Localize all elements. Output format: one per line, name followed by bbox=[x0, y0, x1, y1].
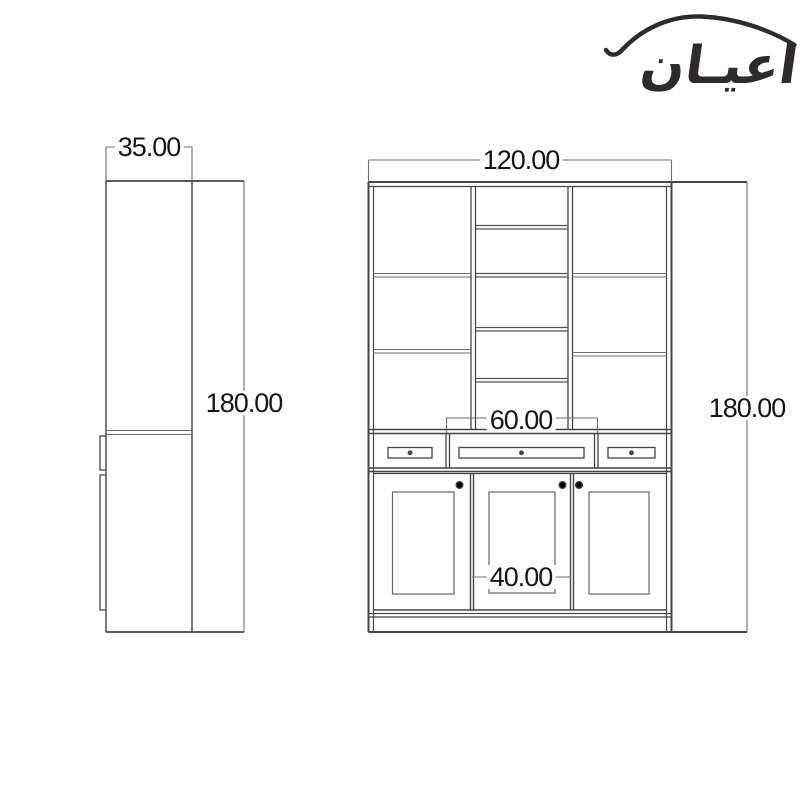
middle-door-knob-icon bbox=[559, 482, 566, 489]
front-view bbox=[369, 182, 748, 632]
middle-drawer-knob-icon bbox=[520, 451, 524, 455]
front-dimension-lines bbox=[369, 160, 748, 632]
left-drawer-knob-icon bbox=[408, 451, 412, 455]
door-knobs bbox=[456, 482, 582, 489]
dim-label-front-width: 120.00 bbox=[480, 148, 563, 172]
drawer-band-bottom bbox=[369, 468, 672, 472]
right-door-knob-icon bbox=[576, 482, 583, 489]
logo-text: اعيـان bbox=[636, 34, 800, 99]
right-door-panel bbox=[589, 492, 649, 594]
right-column-shelves bbox=[573, 274, 667, 357]
dim-label-center-drawer-width: 60.00 bbox=[487, 408, 556, 432]
left-column-shelves bbox=[374, 274, 472, 354]
dim-label-side-height: 180.00 bbox=[203, 391, 286, 415]
left-door-panel bbox=[393, 492, 455, 594]
dim-label-side-width: 35.00 bbox=[115, 135, 184, 159]
side-drawer-front-profile bbox=[100, 436, 106, 470]
technical-drawing-canvas: 35.00 180.00 120.00 180.00 60.00 40.00 ا… bbox=[0, 0, 800, 800]
dim-label-front-height: 180.00 bbox=[706, 396, 789, 420]
dim-label-center-door-width: 40.00 bbox=[487, 565, 556, 589]
middle-column-shelves bbox=[476, 226, 569, 383]
side-counter-line bbox=[106, 431, 192, 435]
hutch-dividers bbox=[471, 187, 573, 430]
side-door-front-profile bbox=[100, 475, 106, 610]
drawer-handles bbox=[388, 448, 655, 459]
cad-line-drawing bbox=[0, 0, 800, 800]
plinth-lines bbox=[369, 614, 672, 618]
left-door-knob-icon bbox=[456, 482, 463, 489]
right-drawer-knob-icon bbox=[630, 451, 634, 455]
